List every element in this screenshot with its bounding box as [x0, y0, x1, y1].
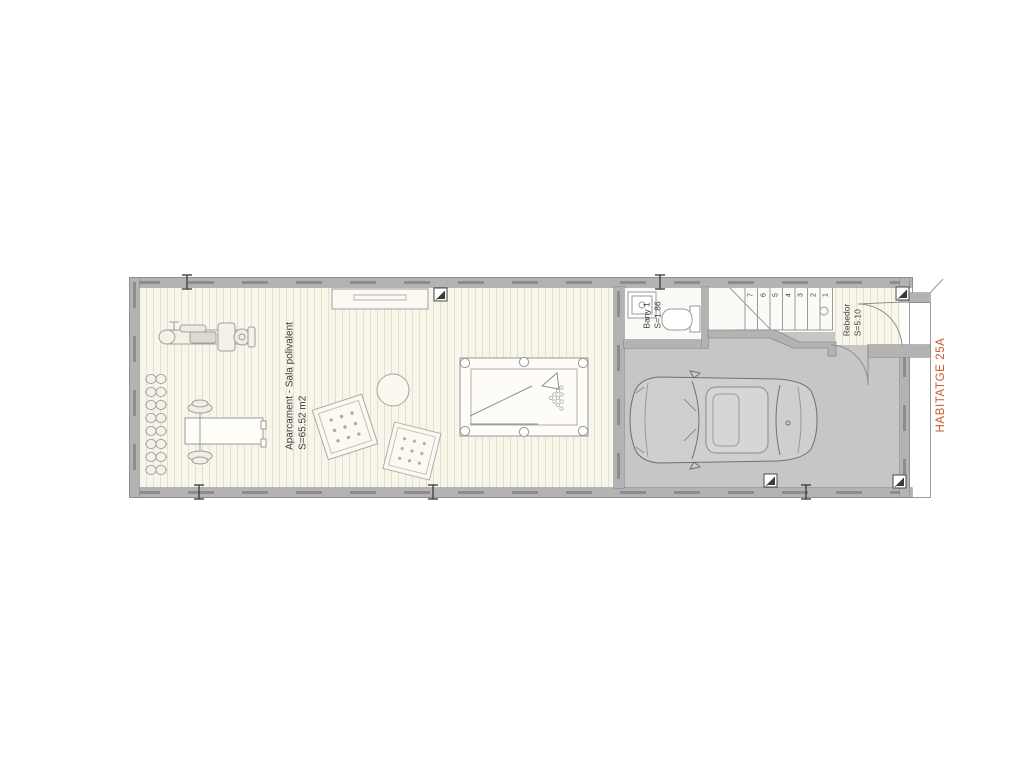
exercise-machine-icon [159, 322, 255, 351]
drain-symbol-icon [434, 288, 447, 301]
toilet-icon [662, 306, 700, 332]
stair-step-number: 7 [748, 293, 755, 297]
survey-tick-icon [655, 275, 665, 289]
floor-mat-icon [312, 394, 378, 460]
wall-entry-stub [909, 293, 930, 302]
sala-area: S=65.52 m2 [297, 322, 310, 450]
section-diagonal [930, 279, 943, 293]
bany-label: Bany 1 S=1.86 [642, 301, 663, 328]
garage-hall-door [831, 345, 868, 385]
bany-name: Bany 1 [642, 301, 653, 328]
stair-step-number: 2 [810, 293, 817, 297]
newel-post [820, 307, 828, 315]
car-icon [630, 371, 817, 469]
pool-table-icon [460, 357, 588, 436]
stair-step-number: 1 [823, 293, 830, 297]
floor-mat-icon [383, 422, 441, 480]
drain-symbol-icon [893, 475, 906, 488]
bany-area: S=1.86 [652, 301, 663, 328]
wall-under-stairs [708, 330, 836, 356]
entry-door [858, 302, 902, 346]
drain-symbol-icon [764, 474, 777, 487]
stair-step-number: 6 [760, 293, 767, 297]
unit-label: HABITATGE 25A [935, 338, 947, 433]
party-wall-band [909, 302, 931, 498]
floor-plan-canvas: Aparcament - Sala polivalent S=65.52 m2 … [0, 0, 1024, 768]
weight-bench-icon [185, 400, 266, 464]
stair-step-number: 4 [785, 293, 792, 297]
survey-tick-icon [428, 485, 438, 499]
stair-step-number: 3 [798, 293, 805, 297]
rebedor-label: Rebedor S=5.10 [842, 304, 863, 337]
shelf-icon [332, 289, 428, 309]
plan-linework [130, 278, 912, 497]
rebedor-area: S=5.10 [852, 304, 863, 337]
staircase [730, 288, 833, 330]
stair-step-number: 5 [773, 293, 780, 297]
survey-tick-icon [801, 485, 811, 499]
survey-tick-icon [194, 485, 204, 499]
floor-plan: Aparcament - Sala polivalent S=65.52 m2 … [130, 278, 912, 497]
drain-symbol-icon [896, 287, 909, 300]
rebedor-name: Rebedor [842, 304, 853, 337]
sala-label: Aparcament - Sala polivalent S=65.52 m2 [285, 322, 310, 450]
sala-name: Aparcament - Sala polivalent [285, 322, 298, 450]
exercise-ball-icon [377, 374, 409, 406]
survey-tick-icon [182, 275, 192, 289]
dumbbell-rack-icon [145, 374, 167, 474]
